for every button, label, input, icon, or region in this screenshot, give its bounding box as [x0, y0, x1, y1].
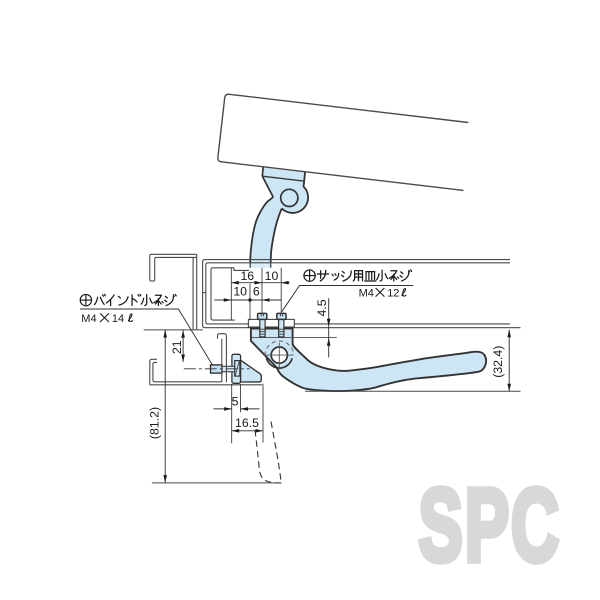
- svg-text:16.5: 16.5: [235, 416, 259, 430]
- svg-text:5: 5: [232, 395, 239, 409]
- svg-text:6: 6: [253, 285, 260, 299]
- svg-text:16: 16: [240, 269, 254, 283]
- svg-text:(32.4): (32.4): [491, 346, 505, 378]
- svg-text:12: 12: [387, 287, 399, 299]
- svg-text:(81.2): (81.2): [148, 407, 162, 439]
- svg-text:10: 10: [233, 285, 247, 299]
- svg-text:M4: M4: [81, 313, 96, 325]
- svg-text:SPC: SPC: [419, 469, 561, 583]
- svg-text:14: 14: [112, 313, 124, 325]
- svg-text:M4: M4: [359, 287, 374, 299]
- svg-text:21: 21: [170, 340, 184, 354]
- svg-text:10: 10: [265, 269, 279, 283]
- svg-text:4.5: 4.5: [315, 299, 329, 316]
